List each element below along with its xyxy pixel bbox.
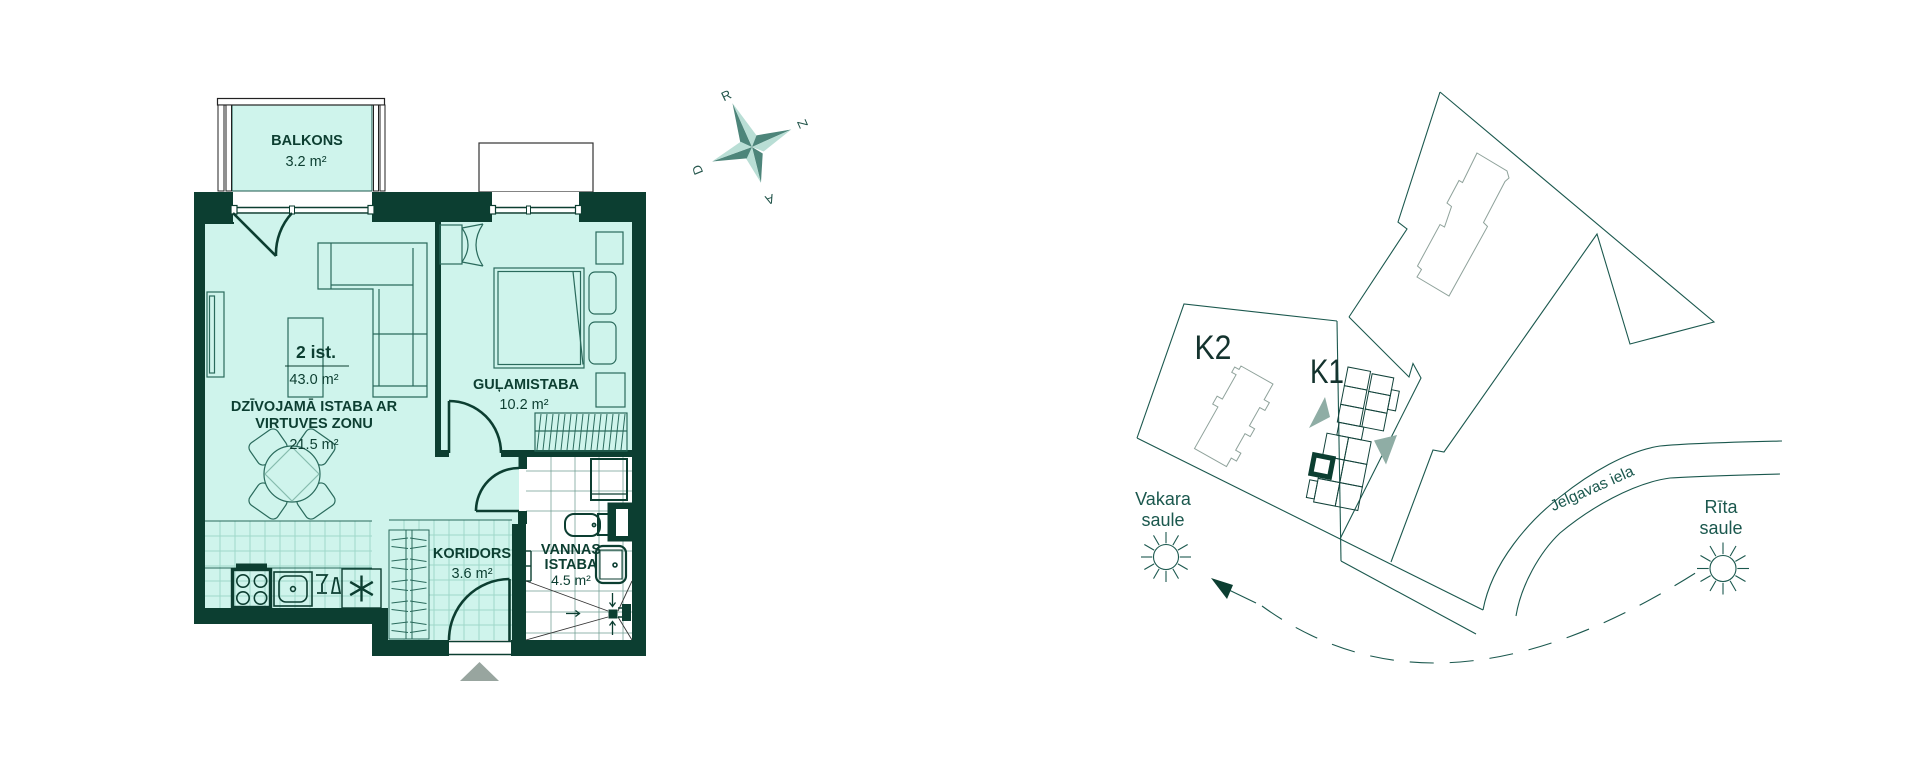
svg-text:K1: K1 [1310, 353, 1344, 391]
svg-text:GUĻAMISTABA: GUĻAMISTABA [473, 377, 580, 393]
svg-text:VANNAS: VANNAS [541, 542, 601, 558]
svg-text:21.5 m²: 21.5 m² [289, 437, 338, 453]
svg-text:KORIDORS: KORIDORS [433, 546, 511, 562]
svg-text:saule: saule [1699, 518, 1742, 538]
svg-text:43.0 m²: 43.0 m² [289, 372, 338, 388]
svg-text:Vakara: Vakara [1135, 489, 1192, 509]
svg-text:3.2 m²: 3.2 m² [285, 154, 326, 170]
svg-text:BALKONS: BALKONS [271, 133, 343, 149]
svg-text:10.2 m²: 10.2 m² [499, 397, 548, 413]
svg-text:K2: K2 [1195, 329, 1232, 367]
svg-text:ISTABA: ISTABA [545, 557, 598, 573]
svg-text:saule: saule [1141, 510, 1184, 530]
svg-text:3.6 m²: 3.6 m² [451, 566, 492, 582]
svg-text:4.5 m²: 4.5 m² [551, 572, 591, 588]
svg-text:2 ist.: 2 ist. [296, 342, 336, 362]
svg-text:VIRTUVES ZONU: VIRTUVES ZONU [255, 416, 373, 432]
svg-text:Rīta: Rīta [1704, 497, 1738, 517]
svg-text:DZĪVOJAMĀ ISTABA AR: DZĪVOJAMĀ ISTABA AR [231, 398, 398, 415]
